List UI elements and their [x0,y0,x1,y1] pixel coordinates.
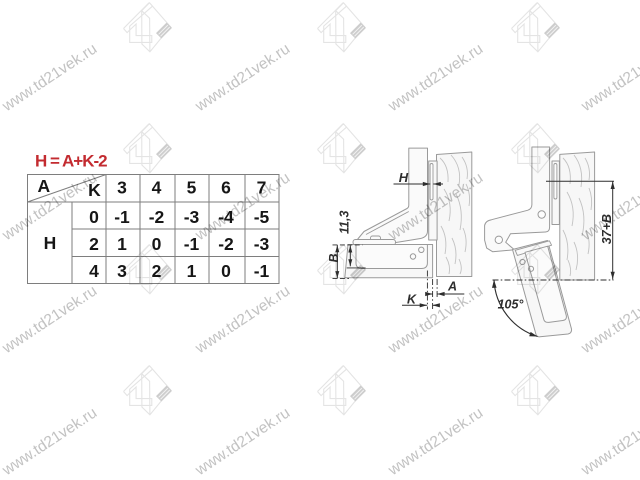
svg-text:www.td21vek.ru: www.td21vek.ru [578,40,640,115]
svg-text:www.td21vek.ru: www.td21vek.ru [0,404,100,479]
svg-text:www.td21vek.ru: www.td21vek.ru [192,169,293,244]
svg-text:www.td21vek.ru: www.td21vek.ru [192,404,293,479]
svg-text:www.td21vek.ru: www.td21vek.ru [385,169,486,244]
svg-text:www.td21vek.ru: www.td21vek.ru [385,40,486,115]
svg-text:www.td21vek.ru: www.td21vek.ru [192,40,293,115]
svg-text:www.td21vek.ru: www.td21vek.ru [0,169,100,244]
svg-text:www.td21vek.ru: www.td21vek.ru [578,169,640,244]
svg-text:www.td21vek.ru: www.td21vek.ru [0,40,100,115]
svg-text:www.td21vek.ru: www.td21vek.ru [578,404,640,479]
svg-text:www.td21vek.ru: www.td21vek.ru [192,282,293,357]
svg-text:www.td21vek.ru: www.td21vek.ru [385,282,486,357]
svg-text:www.td21vek.ru: www.td21vek.ru [385,404,486,479]
svg-text:www.td21vek.ru: www.td21vek.ru [0,282,100,357]
svg-text:www.td21vek.ru: www.td21vek.ru [578,282,640,357]
